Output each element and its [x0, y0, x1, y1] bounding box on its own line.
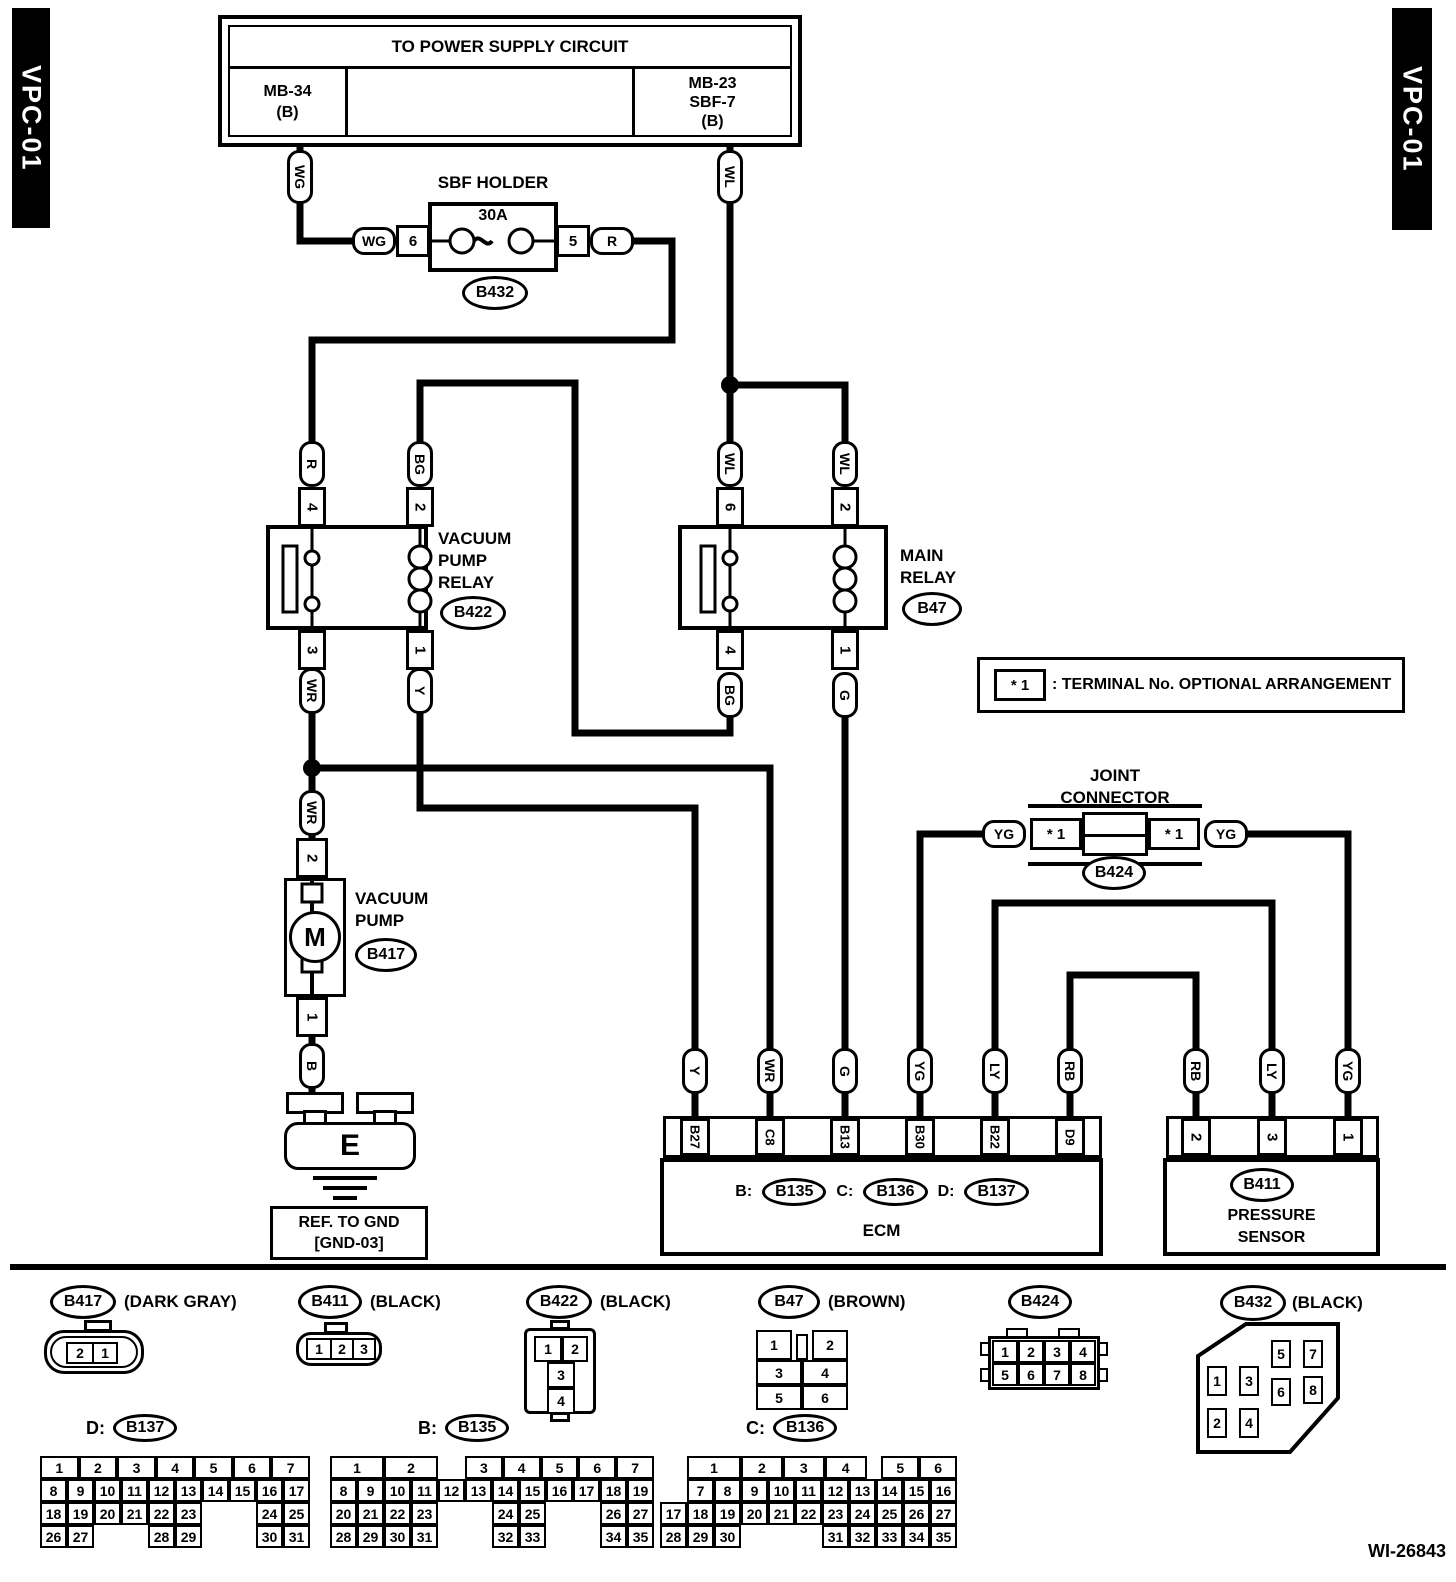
wire-label-yg-jc-right: YG — [1204, 820, 1248, 848]
pin-cell-21: 21 — [121, 1502, 148, 1525]
pin-cell-14: 14 — [492, 1479, 519, 1502]
mb34-line2: (B) — [276, 102, 298, 123]
pin-cell-35: 35 — [627, 1525, 654, 1548]
pin-cell-15: 15 — [903, 1479, 930, 1502]
ps-terminal-3: 3 — [1257, 1118, 1287, 1156]
vpr-pin-2: 2 — [406, 487, 434, 527]
pin-cell-16: 16 — [546, 1479, 573, 1502]
b424-pin-5: 5 — [992, 1363, 1018, 1386]
pin-cell-22: 22 — [384, 1502, 411, 1525]
mb23-line1: MB-23 — [688, 74, 736, 93]
pin-cell-15: 15 — [519, 1479, 546, 1502]
power-cell-mb34: MB-34 (B) — [230, 69, 348, 135]
b135-prefix: B: — [418, 1418, 437, 1439]
b47-pin-1: 1 — [756, 1330, 792, 1360]
pin-cell-2: 2 — [741, 1456, 783, 1479]
wire-y — [420, 692, 695, 1120]
ecm-terminal-b22: B22 — [980, 1118, 1010, 1156]
pin-cell-8: 8 — [714, 1479, 741, 1502]
junction-dot — [303, 759, 321, 777]
legend-tag-b432: B432 — [1220, 1285, 1286, 1321]
b432-pin-7: 7 — [1303, 1340, 1323, 1368]
pump-name-2: PUMP — [355, 910, 404, 932]
grid-tag-b136: B136 — [773, 1414, 837, 1442]
b432-pin-1: 1 — [1207, 1366, 1227, 1396]
pin-cell-17: 17 — [660, 1502, 687, 1525]
vpr-pin-3: 3 — [298, 630, 326, 670]
ecm-terminal-c8: C8 — [755, 1118, 785, 1156]
pin-cell-13: 13 — [175, 1479, 202, 1502]
motor-symbol: M — [289, 911, 341, 963]
legend-tag-b47: B47 — [758, 1285, 820, 1319]
pin-cell-19: 19 — [627, 1479, 654, 1502]
pin-cell-27: 27 — [930, 1502, 957, 1525]
wire-label-b-pump: B — [299, 1043, 325, 1089]
fuse-rating: 30A — [463, 206, 523, 226]
pin-cell-6: 6 — [919, 1456, 957, 1479]
b424-pin-3: 3 — [1044, 1340, 1070, 1363]
note-text: : TERMINAL No. OPTIONAL ARRANGEMENT — [1052, 676, 1391, 694]
wire-label-rb-ecm: RB — [1057, 1048, 1083, 1094]
pin-cell-2: 2 — [384, 1456, 438, 1479]
pin-cell-1: 1 — [330, 1456, 384, 1479]
b47-pin-6: 6 — [802, 1385, 848, 1410]
pin-cell-13: 13 — [465, 1479, 492, 1502]
mr-pin-1: 1 — [831, 630, 859, 670]
wire-label-wg-source: WG — [287, 150, 313, 204]
ecm-terminal-d9: D9 — [1055, 1118, 1085, 1156]
pin-cell-32: 32 — [849, 1525, 876, 1548]
pin-cell-22: 22 — [795, 1502, 822, 1525]
vpr-name-2: PUMP — [438, 550, 487, 572]
page-code-left: VPC-01 — [12, 8, 50, 228]
pin-cell-31: 31 — [283, 1525, 310, 1548]
wire-label-wl-mr6: WL — [717, 441, 743, 487]
pin-cell-20: 20 — [94, 1502, 121, 1525]
grid-label-b137: D: B137 — [86, 1414, 177, 1442]
b424-pin-7: 7 — [1044, 1363, 1070, 1386]
legend-color-b47: (BROWN) — [828, 1291, 905, 1313]
legend-color-b417: (DARK GRAY) — [124, 1291, 237, 1313]
pin-cell-5: 5 — [194, 1456, 233, 1479]
pin-cell-26: 26 — [903, 1502, 930, 1525]
pin-cell-31: 31 — [411, 1525, 438, 1548]
pin-cell-7: 7 — [616, 1456, 654, 1479]
pin-cell-1: 1 — [687, 1456, 741, 1479]
pin-cell-5: 5 — [881, 1456, 919, 1479]
wire-label-wr-relay: WR — [299, 668, 325, 714]
pin-cell-32: 32 — [492, 1525, 519, 1548]
b432-pin-4: 4 — [1239, 1408, 1259, 1438]
pin-cell-7: 7 — [687, 1479, 714, 1502]
ps-terminal-1: 1 — [1333, 1118, 1363, 1156]
pin-cell-29: 29 — [357, 1525, 384, 1548]
b422-pin-3: 3 — [547, 1362, 575, 1388]
wire-label-rb-ps: RB — [1183, 1048, 1209, 1094]
pin-cell-9: 9 — [67, 1479, 94, 1502]
mr-pin-2: 2 — [831, 487, 859, 527]
wire-label-yg-ps: YG — [1335, 1048, 1361, 1094]
b432-pin-2: 2 — [1207, 1408, 1227, 1438]
pin-cell-16: 16 — [256, 1479, 283, 1502]
wire-r — [312, 241, 672, 465]
mb34-line1: MB-34 — [263, 81, 311, 102]
b47-key-slot — [796, 1334, 808, 1360]
legend-conn-b417-tab — [84, 1320, 112, 1332]
page-code-left-text: VPC-01 — [16, 65, 47, 172]
pin-cell-18: 18 — [687, 1502, 714, 1525]
ps-name-1: PRESSURE — [1163, 1206, 1380, 1226]
wire-label-yg-ecm: YG — [907, 1048, 933, 1094]
connector-tag-b137: B137 — [964, 1178, 1028, 1206]
pin-cell-21: 21 — [357, 1502, 384, 1525]
pin-cell-24: 24 — [492, 1502, 519, 1525]
power-supply-title: TO POWER SUPPLY CIRCUIT — [230, 27, 790, 69]
pin-cell-20: 20 — [741, 1502, 768, 1525]
pump-pin-2: 2 — [296, 838, 328, 878]
pin-cell-34: 34 — [903, 1525, 930, 1548]
pin-cell-19: 19 — [714, 1502, 741, 1525]
ground-ref-line1: REF. TO GND — [298, 1212, 399, 1233]
b432-pin-5: 5 — [1271, 1340, 1291, 1368]
pin-cell-17: 17 — [573, 1479, 600, 1502]
b424-pin-4: 4 — [1070, 1340, 1096, 1363]
pin-cell-34: 34 — [600, 1525, 627, 1548]
pin-cell-12: 12 — [438, 1479, 465, 1502]
wire-label-r: R — [590, 227, 634, 255]
pin-cell-24: 24 — [849, 1502, 876, 1525]
pin-grid-b135: 1234567891011121314151617181920212223242… — [330, 1456, 654, 1548]
power-supply-box: TO POWER SUPPLY CIRCUIT MB-34 (B) MB-23 … — [218, 15, 802, 147]
pin-cell-30: 30 — [384, 1525, 411, 1548]
pin-cell-30: 30 — [714, 1525, 741, 1548]
legend-color-b422: (BLACK) — [600, 1291, 671, 1313]
pin-cell-24: 24 — [256, 1502, 283, 1525]
pin-cell-11: 11 — [121, 1479, 148, 1502]
wire-yg-right — [1240, 834, 1348, 1120]
pin-cell-21: 21 — [768, 1502, 795, 1525]
wire-label-g-ecm: G — [832, 1048, 858, 1094]
pin-cell-5: 5 — [541, 1456, 579, 1479]
pin-cell-18: 18 — [600, 1479, 627, 1502]
legend-tag-b422: B422 — [526, 1285, 592, 1319]
jc-name-1: JOINT — [1015, 766, 1215, 786]
ecm-terminal-b30: B30 — [905, 1118, 935, 1156]
pin-cell-31: 31 — [822, 1525, 849, 1548]
vpr-name-1: VACUUM — [438, 528, 511, 550]
wire-label-wl-mr2: WL — [832, 441, 858, 487]
mr-name-2: RELAY — [900, 567, 956, 589]
wire-wl-branch — [730, 385, 845, 465]
b424-pin-1: 1 — [992, 1340, 1018, 1363]
pin-cell-8: 8 — [40, 1479, 67, 1502]
b422-pin-1: 1 — [534, 1336, 562, 1362]
b411-pin-2: 2 — [330, 1338, 354, 1360]
pin-cell-33: 33 — [876, 1525, 903, 1548]
pin-cell-18: 18 — [40, 1502, 67, 1525]
legend-color-b432: (BLACK) — [1292, 1292, 1363, 1314]
mr-pin-6: 6 — [716, 487, 744, 527]
fuse-pin-6: 6 — [396, 225, 430, 257]
wire-rb — [1070, 975, 1196, 1120]
connector-tag-b47: B47 — [902, 592, 962, 626]
ecm-terminal-b27: B27 — [680, 1118, 710, 1156]
pin-cell-3: 3 — [465, 1456, 503, 1479]
pin-cell-6: 6 — [233, 1456, 272, 1479]
vpr-name-3: RELAY — [438, 572, 494, 594]
connector-tag-b136: B136 — [863, 1178, 927, 1206]
wire-label-bg-relay: BG — [407, 441, 433, 487]
wire-label-ly-ps: LY — [1259, 1048, 1285, 1094]
pin-cell-35: 35 — [930, 1525, 957, 1548]
pin-cell-23: 23 — [175, 1502, 202, 1525]
pin-cell-26: 26 — [600, 1502, 627, 1525]
pin-cell-9: 9 — [357, 1479, 384, 1502]
pin-cell-17: 17 — [283, 1479, 310, 1502]
page-code-right: VPC-01 — [1392, 8, 1432, 230]
pin-cell-27: 27 — [67, 1525, 94, 1548]
ecm-ref-d-prefix: D: — [938, 1183, 955, 1201]
ground-ref-line2: [GND-03] — [314, 1233, 383, 1254]
legend-tag-b417: B417 — [50, 1285, 116, 1319]
b417-pin-2: 2 — [66, 1342, 94, 1364]
ecm-terminal-strip — [663, 1116, 1102, 1158]
wire-label-y-ecm: Y — [682, 1048, 708, 1094]
pin-cell-11: 11 — [795, 1479, 822, 1502]
doc-number: WI-26843 — [1290, 1540, 1446, 1562]
b432-pin-6: 6 — [1271, 1378, 1291, 1406]
pin-cell-1: 1 — [40, 1456, 79, 1479]
ps-name-2: SENSOR — [1163, 1228, 1380, 1248]
ps-terminal-2: 2 — [1181, 1118, 1211, 1156]
mb23-line2: SBF-7 — [689, 93, 735, 112]
grid-tag-b137: B137 — [113, 1414, 177, 1442]
ground-ref-box: REF. TO GND [GND-03] — [270, 1206, 428, 1260]
pin-cell-6: 6 — [578, 1456, 616, 1479]
pin-cell-33: 33 — [519, 1525, 546, 1548]
pin-cell-23: 23 — [411, 1502, 438, 1525]
pin-cell-2: 2 — [79, 1456, 118, 1479]
b47-pin-2: 2 — [812, 1330, 848, 1360]
pin-cell-23: 23 — [822, 1502, 849, 1525]
b417-pin-1: 1 — [92, 1342, 118, 1364]
pump-pin-1: 1 — [296, 997, 328, 1037]
pin-cell-15: 15 — [229, 1479, 256, 1502]
jc-body-divider — [1085, 834, 1145, 837]
b422-pin-4: 4 — [547, 1388, 575, 1414]
grid-label-b135: B: B135 — [418, 1414, 509, 1442]
pin-cell-11: 11 — [411, 1479, 438, 1502]
legend-separator — [10, 1264, 1446, 1270]
ecm-ref-b-prefix: B: — [735, 1183, 752, 1201]
b432-pin-8: 8 — [1303, 1376, 1323, 1404]
pin-cell-27: 27 — [627, 1502, 654, 1525]
connector-tag-b422: B422 — [440, 596, 506, 630]
pin-cell-10: 10 — [768, 1479, 795, 1502]
grid-label-b136: C: B136 — [746, 1414, 837, 1442]
ecm-terminal-b13: B13 — [830, 1118, 860, 1156]
pin-cell-28: 28 — [148, 1525, 175, 1548]
wiring-diagram-page: VPC-01 VPC-01 TO POWER SUPPLY CIRCUIT MB… — [0, 0, 1456, 1582]
pin-cell-29: 29 — [175, 1525, 202, 1548]
ground-terminal: E — [284, 1122, 416, 1170]
pin-cell-9: 9 — [741, 1479, 768, 1502]
connector-tag-b424: B424 — [1082, 856, 1146, 890]
pin-cell-8: 8 — [330, 1479, 357, 1502]
pin-cell-20: 20 — [330, 1502, 357, 1525]
sbf-holder-label: SBF HOLDER — [408, 172, 578, 194]
b47-pin-3: 3 — [756, 1360, 802, 1385]
pin-cell-26: 26 — [40, 1525, 67, 1548]
jc-term-right: * 1 — [1148, 818, 1200, 850]
pin-cell-3: 3 — [117, 1456, 156, 1479]
page-code-right-text: VPC-01 — [1397, 66, 1428, 173]
pin-grid-b137: 1234567891011121314151617181920212223242… — [40, 1456, 310, 1548]
legend-tag-b411: B411 — [298, 1285, 362, 1319]
pin-cell-13: 13 — [849, 1479, 876, 1502]
b411-pin-3: 3 — [352, 1338, 376, 1360]
ecm-label: ECM — [660, 1220, 1103, 1242]
wire-label-y-relay: Y — [407, 668, 433, 714]
vpr-pin-4: 4 — [298, 487, 326, 527]
b424-pin-8: 8 — [1070, 1363, 1096, 1386]
power-cell-mb23: MB-23 SBF-7 (B) — [632, 69, 790, 135]
main-relay-box — [678, 525, 888, 630]
b137-prefix: D: — [86, 1418, 105, 1439]
jc-body — [1082, 812, 1148, 856]
pin-cell-30: 30 — [256, 1525, 283, 1548]
pin-cell-25: 25 — [519, 1502, 546, 1525]
jc-name-2: CONNECTOR — [1015, 788, 1215, 808]
pin-cell-25: 25 — [283, 1502, 310, 1525]
b136-prefix: C: — [746, 1418, 765, 1439]
note-box: * 1 : TERMINAL No. OPTIONAL ARRANGEMENT — [977, 657, 1405, 713]
b432-pin-3: 3 — [1239, 1366, 1259, 1396]
legend-color-b411: (BLACK) — [370, 1291, 441, 1313]
pin-cell-10: 10 — [94, 1479, 121, 1502]
jc-term-left: * 1 — [1030, 818, 1082, 850]
pin-grid-b136: 1234567891011121314151617181920212223242… — [660, 1456, 957, 1548]
b424-pin-6: 6 — [1018, 1363, 1044, 1386]
connector-tag-b417: B417 — [355, 938, 417, 972]
pin-cell-19: 19 — [67, 1502, 94, 1525]
vacuum-pump-relay-box — [266, 525, 428, 630]
wire-label-wg: WG — [352, 227, 396, 255]
pin-cell-28: 28 — [330, 1525, 357, 1548]
pin-cell-4: 4 — [825, 1456, 867, 1479]
wire-label-wr-ecm: WR — [757, 1048, 783, 1094]
wire-label-wr-pump: WR — [299, 790, 325, 836]
connector-tag-b411: B411 — [1230, 1168, 1294, 1202]
junction-dot — [721, 376, 739, 394]
wire-label-g-mr1: G — [832, 672, 858, 718]
pin-cell-22: 22 — [148, 1502, 175, 1525]
note-term-symbol: * 1 — [994, 669, 1046, 701]
wire-ly — [995, 903, 1272, 1120]
b411-pin-1: 1 — [306, 1338, 332, 1360]
pin-cell-12: 12 — [148, 1479, 175, 1502]
mb23-line3: (B) — [701, 112, 723, 131]
b47-pin-5: 5 — [756, 1385, 802, 1410]
wire-label-yg-jc-left: YG — [982, 820, 1026, 848]
pump-name-1: VACUUM — [355, 888, 428, 910]
pin-cell-3: 3 — [783, 1456, 825, 1479]
pin-cell-12: 12 — [822, 1479, 849, 1502]
pin-cell-4: 4 — [156, 1456, 195, 1479]
legend-tag-b424: B424 — [1008, 1285, 1072, 1319]
pin-cell-10: 10 — [384, 1479, 411, 1502]
pin-cell-29: 29 — [687, 1525, 714, 1548]
wire-label-wl-source: WL — [717, 150, 743, 204]
wire-label-ly-ecm: LY — [982, 1048, 1008, 1094]
pin-cell-28: 28 — [660, 1525, 687, 1548]
connector-tag-b135: B135 — [762, 1178, 826, 1206]
ecm-connector-refs: B: B135 C: B136 D: B137 — [668, 1172, 1096, 1212]
fuse-pin-5: 5 — [556, 225, 590, 257]
pin-cell-16: 16 — [930, 1479, 957, 1502]
pin-cell-4: 4 — [503, 1456, 541, 1479]
grid-tag-b135: B135 — [445, 1414, 509, 1442]
mr-name-1: MAIN — [900, 545, 943, 567]
connector-tag-b432: B432 — [462, 276, 528, 310]
pin-cell-25: 25 — [876, 1502, 903, 1525]
vpr-pin-1: 1 — [406, 630, 434, 670]
pin-cell-14: 14 — [202, 1479, 229, 1502]
wire-layer — [0, 0, 1456, 1582]
wire-label-bg-mr4: BG — [717, 672, 743, 718]
b47-pin-4: 4 — [802, 1360, 848, 1385]
b422-pin-2: 2 — [562, 1336, 588, 1362]
wire-label-r-relay: R — [299, 441, 325, 487]
ecm-ref-c-prefix: C: — [836, 1183, 853, 1201]
mr-pin-4: 4 — [716, 630, 744, 670]
b424-pin-2: 2 — [1018, 1340, 1044, 1363]
pin-cell-7: 7 — [271, 1456, 310, 1479]
pin-cell-14: 14 — [876, 1479, 903, 1502]
